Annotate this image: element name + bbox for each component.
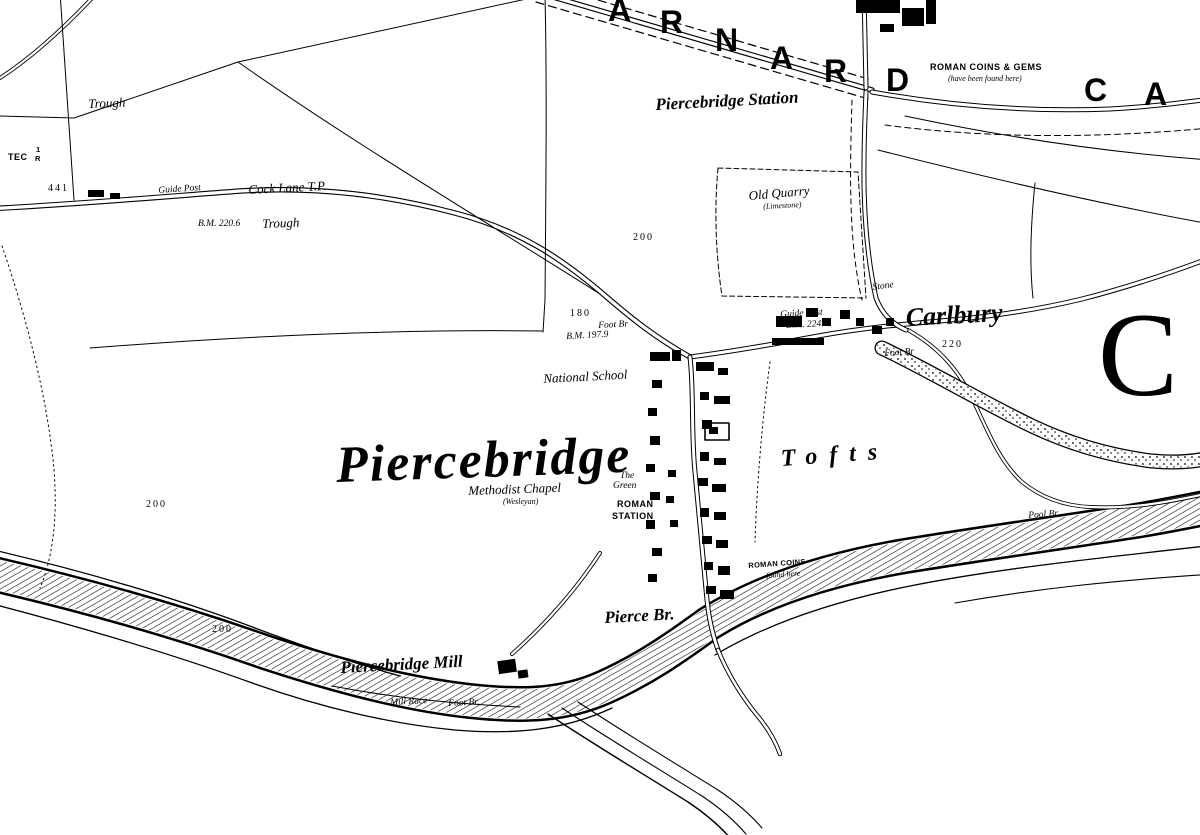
map-linework bbox=[0, 0, 1200, 835]
railway-line bbox=[536, 0, 872, 100]
field-boundaries bbox=[0, 0, 1200, 588]
scrub-strip bbox=[882, 348, 1200, 462]
historic-os-map-canvas[interactable]: TroughTEC1R441Guide PostCock Lane T.P.B.… bbox=[0, 0, 1200, 835]
